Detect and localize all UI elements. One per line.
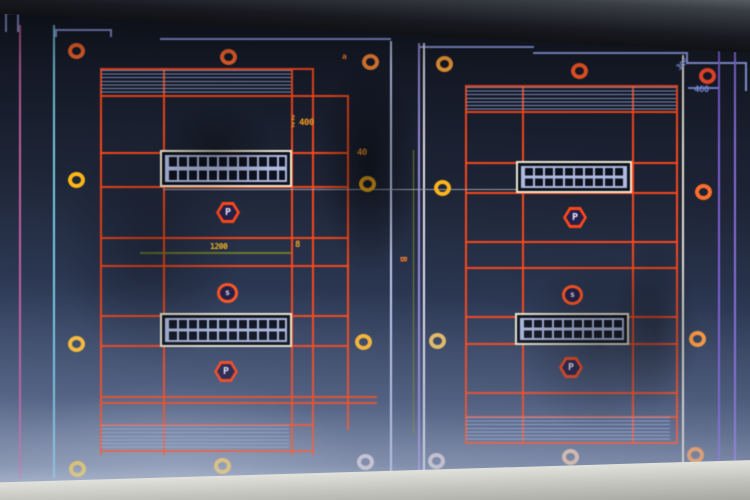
- donut-marker[interactable]: [214, 458, 231, 474]
- wall-line[interactable]: [5, 12, 7, 32]
- reference-line[interactable]: [140, 252, 291, 254]
- dimension-text[interactable]: 1200: [210, 242, 227, 251]
- donut-marker[interactable]: [562, 449, 579, 465]
- dimension-text[interactable]: 400: [299, 118, 314, 128]
- hatch-band[interactable]: [101, 70, 291, 94]
- grid-line[interactable]: [347, 95, 349, 430]
- axis-line[interactable]: [390, 41, 392, 478]
- dimension-text[interactable]: 460: [694, 85, 709, 95]
- grille-grid-pattern: [165, 155, 287, 182]
- wall-line[interactable]: [55, 29, 57, 37]
- grid-line[interactable]: [465, 442, 678, 444]
- hatch-band[interactable]: [466, 87, 676, 110]
- donut-marker[interactable]: [68, 172, 85, 188]
- axis-line[interactable]: [682, 55, 684, 475]
- sensor-symbol-s[interactable]: s: [562, 285, 583, 305]
- axis-line[interactable]: [413, 150, 414, 435]
- grid-line[interactable]: [465, 85, 467, 444]
- grid-line[interactable]: [465, 392, 678, 394]
- diffuser-grille[interactable]: [515, 313, 629, 345]
- hatch-band[interactable]: [466, 417, 670, 441]
- symbol-label: s: [570, 291, 575, 299]
- wall-line[interactable]: [55, 29, 112, 31]
- diffuser-grille[interactable]: [516, 161, 632, 193]
- wall-line[interactable]: [533, 52, 687, 54]
- grid-line[interactable]: [632, 85, 634, 444]
- grid-line[interactable]: [465, 111, 678, 113]
- donut-marker[interactable]: [695, 184, 712, 200]
- donut-marker[interactable]: [362, 54, 379, 70]
- axis-line[interactable]: [423, 43, 425, 478]
- dimension-text[interactable]: 2: [291, 121, 295, 129]
- cad-viewport[interactable]: PsPPsP2240040a8B1200305460: [0, 0, 750, 500]
- sprinkler-symbol-p[interactable]: P: [563, 207, 587, 228]
- donut-marker[interactable]: [68, 43, 85, 59]
- donut-marker[interactable]: [699, 68, 716, 84]
- grille-grid-pattern: [520, 318, 624, 340]
- symbol-inner: P: [219, 205, 237, 220]
- symbol-inner: P: [562, 360, 580, 375]
- donut-marker[interactable]: [429, 333, 446, 349]
- grid-line[interactable]: [100, 95, 349, 97]
- dimension-text[interactable]: 8: [295, 240, 300, 250]
- donut-marker[interactable]: [220, 49, 237, 65]
- donut-marker[interactable]: [69, 461, 86, 477]
- symbol-label: P: [223, 367, 229, 377]
- grid-line[interactable]: [522, 85, 524, 444]
- grid-line[interactable]: [100, 237, 349, 239]
- sprinkler-symbol-p[interactable]: P: [559, 357, 583, 378]
- grille-grid-pattern: [521, 166, 627, 188]
- grid-line[interactable]: [465, 267, 678, 269]
- wall-line[interactable]: [420, 46, 534, 48]
- symbol-label: s: [225, 289, 230, 297]
- axis-line[interactable]: [718, 28, 720, 475]
- axis-line[interactable]: [418, 43, 420, 478]
- axis-line[interactable]: [19, 25, 21, 478]
- reference-line[interactable]: [163, 189, 520, 190]
- sprinkler-symbol-p[interactable]: P: [214, 361, 238, 382]
- grid-line[interactable]: [676, 85, 678, 444]
- diffuser-grille[interactable]: [160, 313, 292, 347]
- wall-line[interactable]: [745, 62, 747, 91]
- grid-line[interactable]: [465, 241, 678, 243]
- wall-line[interactable]: [160, 38, 391, 40]
- sprinkler-symbol-p[interactable]: P: [216, 202, 240, 223]
- grid-line[interactable]: [100, 450, 314, 452]
- axis-line[interactable]: [53, 25, 55, 478]
- donut-marker[interactable]: [428, 453, 445, 469]
- dimension-text[interactable]: a: [342, 52, 346, 61]
- wall-line[interactable]: [110, 29, 112, 37]
- symbol-inner: P: [566, 210, 584, 225]
- donut-marker[interactable]: [355, 334, 372, 350]
- donut-marker[interactable]: [68, 336, 85, 352]
- dimension-text[interactable]: 40: [357, 148, 367, 158]
- monitor-photo: PsPPsP2240040a8B1200305460: [0, 0, 750, 500]
- donut-marker[interactable]: [571, 63, 588, 79]
- donut-marker[interactable]: [434, 180, 451, 196]
- symbol-inner: P: [217, 364, 235, 379]
- dimension-text[interactable]: B: [397, 257, 407, 262]
- grid-line[interactable]: [100, 396, 377, 398]
- donut-marker[interactable]: [689, 331, 706, 347]
- sensor-symbol-s[interactable]: s: [217, 283, 238, 303]
- grille-grid-pattern: [165, 318, 287, 342]
- symbol-label: P: [225, 208, 231, 218]
- symbol-label: P: [568, 363, 574, 373]
- donut-marker[interactable]: [436, 56, 453, 72]
- hatch-band[interactable]: [101, 425, 289, 449]
- grid-line[interactable]: [100, 265, 349, 267]
- entities-layer: PsPPsP2240040a8B1200305460: [0, 0, 750, 500]
- grid-line[interactable]: [100, 402, 377, 404]
- axis-line[interactable]: [734, 25, 736, 477]
- donut-marker[interactable]: [359, 176, 376, 192]
- wall-line[interactable]: [686, 62, 747, 64]
- symbol-label: P: [572, 213, 578, 223]
- diffuser-grille[interactable]: [160, 150, 292, 187]
- donut-marker[interactable]: [357, 454, 374, 470]
